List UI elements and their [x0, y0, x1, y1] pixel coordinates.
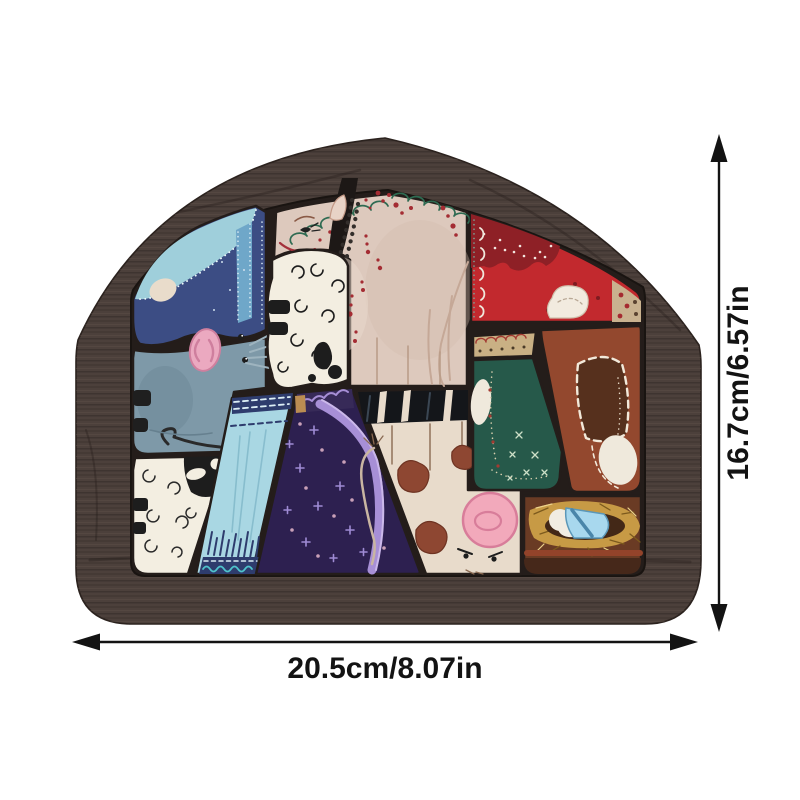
- pig-snout: [463, 493, 517, 547]
- piece-spotted-lamb: [267, 250, 348, 389]
- lamb-spot-dot: [328, 365, 342, 379]
- boot-shape: [577, 357, 628, 441]
- width-dimension-label: 20.5cm/8.07in: [287, 652, 482, 685]
- lamb-spot-dot2: [308, 374, 316, 382]
- arrowhead-up-icon: [711, 134, 728, 162]
- gold-strip: [295, 395, 306, 413]
- width-dimension: 20.5cm/8.07in: [72, 634, 698, 686]
- piece-blue-shepherd: [133, 206, 266, 345]
- green-tan-band: [473, 332, 536, 358]
- arrowhead-left-icon: [72, 634, 100, 651]
- product-photo: 20.5cm/8.07in 16.7cm/6.57in: [0, 0, 800, 800]
- height-dimension-label: 16.7cm/6.57in: [722, 285, 755, 480]
- basket-base: [524, 558, 641, 574]
- arrowhead-down-icon: [711, 604, 728, 632]
- piece-manger: [524, 496, 641, 574]
- puzzle-board: [60, 120, 740, 640]
- cream-figure-shading: [365, 220, 475, 360]
- height-dimension: 16.7cm/6.57in: [711, 134, 756, 632]
- arrowhead-right-icon: [670, 634, 698, 651]
